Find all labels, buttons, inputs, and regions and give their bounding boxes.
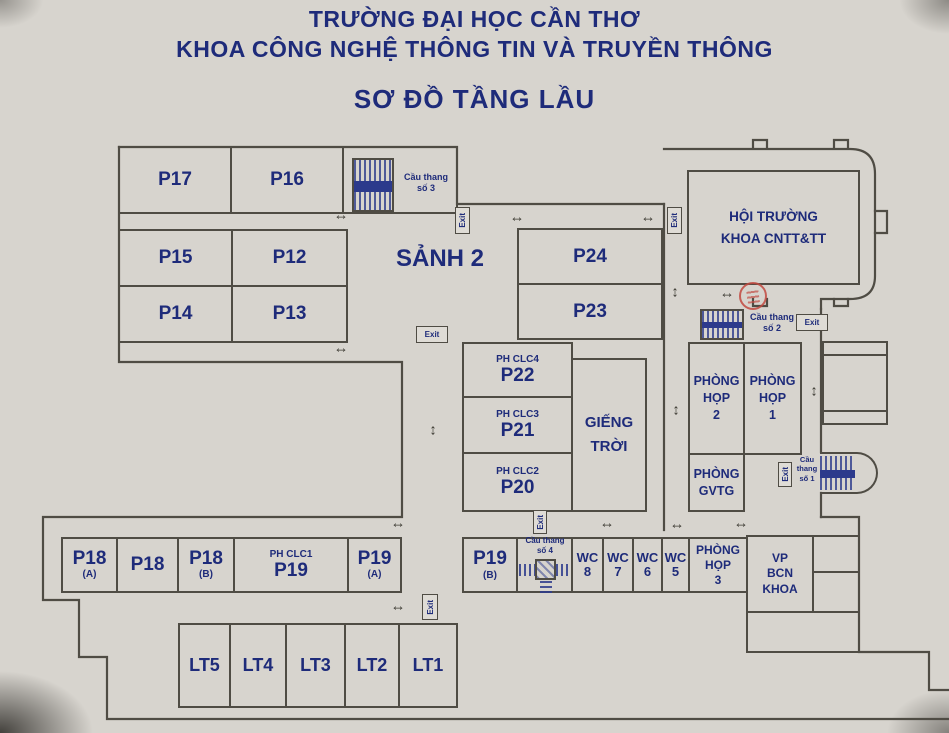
exit-sign: Exit <box>533 510 547 534</box>
room-wc5: WC 5 <box>663 539 688 591</box>
corridor-arrow-h: ↔ <box>391 599 406 614</box>
room-p18: P18 <box>118 539 179 591</box>
room-p23: P23 <box>519 285 661 338</box>
stair-4-hatch-bottom <box>540 580 552 593</box>
stair-1-icon <box>820 452 878 494</box>
room-lt5: LT5 <box>180 625 231 706</box>
block-wc: WC 8 WC 7 WC 6 WC 5 <box>571 537 690 593</box>
room-p16: P16 <box>232 148 344 212</box>
room-lt2: LT2 <box>346 625 400 706</box>
room-hop-3: PHÒNG HỌP 3 <box>688 537 748 593</box>
location-stamp <box>739 282 767 310</box>
block-bottom-left: P18 (A) P18 P18 (B) PH CLC1 P19 P19 (A) <box>61 537 402 593</box>
corridor-arrow-h: ↔ <box>670 517 685 532</box>
room-p21: PH CLC3 P21 <box>464 398 571 454</box>
room-p14: P14 <box>120 287 233 341</box>
corridor-arrow-v: ↕ <box>810 384 818 399</box>
corridor-arrow-h: ↔ <box>334 208 349 223</box>
exit-sign: Exit <box>796 314 828 331</box>
room-gvtg: PHÒNG GVTG <box>688 453 745 512</box>
stair-2-icon <box>700 309 744 340</box>
room-vp-bcn-khoa: VP BCN KHOA <box>746 535 814 613</box>
room-p13: P13 <box>233 287 346 341</box>
room-hop-2: PHÒNG HỌP 2 <box>690 344 745 453</box>
corridor-arrow-h: ↔ <box>734 516 749 531</box>
room-unlabeled-3 <box>746 611 860 653</box>
room-lt3: LT3 <box>287 625 346 706</box>
corridor-arrow-v: ↕ <box>672 403 680 418</box>
exit-sign: Exit <box>422 594 438 620</box>
wall-path <box>875 211 887 233</box>
block-left-row1: P15 P12 <box>120 231 346 287</box>
corridor-arrow-h: ↔ <box>334 341 349 356</box>
room-p12: P12 <box>233 231 346 287</box>
room-p22: PH CLC4 P22 <box>464 344 571 398</box>
room-p24: P24 <box>519 230 661 285</box>
room-p18b: P18 (B) <box>179 539 235 591</box>
corridor-arrow-h: ↔ <box>510 210 525 225</box>
stair-3-icon <box>352 158 394 212</box>
floor-plan: TRƯỜNG ĐẠI HỌC CẦN THƠ KHOA CÔNG NGHỆ TH… <box>0 0 949 733</box>
stair-3-label: Cầu thang số 3 <box>396 172 456 195</box>
room-unlabeled-2 <box>814 573 858 611</box>
stair-4-hatch-right <box>556 564 572 576</box>
block-left-row2: P14 P13 <box>120 287 346 341</box>
corridor-arrow-h: ↔ <box>720 286 735 301</box>
room-p17: P17 <box>120 148 232 212</box>
room-gieng-troi: GIẾNG TRỜI <box>571 358 647 512</box>
room-p19b: P19 (B) <box>462 537 518 593</box>
room-wc6: WC 6 <box>634 539 663 591</box>
hall-2-label: SẢNH 2 <box>395 245 485 273</box>
room-wc8: WC 8 <box>573 539 604 591</box>
room-p20: PH CLC2 P20 <box>464 454 571 510</box>
room-p15: P15 <box>120 231 233 287</box>
room-p19-clc1: PH CLC1 P19 <box>235 539 349 591</box>
room-hop-1: PHÒNG HỌP 1 <box>745 344 800 453</box>
stair-4-label: Cầu thang số 4 <box>519 536 571 556</box>
balcony <box>822 341 888 425</box>
room-p18a: P18 (A) <box>63 539 118 591</box>
corridor-arrow-v: ↕ <box>429 423 437 438</box>
block-left: P15 P12 P14 P13 <box>118 229 348 343</box>
room-lt1: LT1 <box>400 625 456 706</box>
room-hoi-truong: HỘI TRƯỜNG KHOA CNTT&TT <box>687 170 860 285</box>
stair-2-label: Cầu thang số 2 <box>745 312 799 335</box>
room-wc7: WC 7 <box>604 539 634 591</box>
stair-4-icon <box>535 559 556 580</box>
block-p24-p23: P24 P23 <box>517 228 663 340</box>
exit-sign: Exit <box>778 462 792 487</box>
wall-path <box>753 299 848 306</box>
corridor-arrow-h: ↔ <box>391 516 406 531</box>
stair-1-label: Cầu thang số 1 <box>793 455 821 483</box>
wall-path <box>753 140 848 147</box>
exit-sign: Exit <box>416 326 448 343</box>
corridor-arrow-h: ↔ <box>641 210 656 225</box>
room-unlabeled-1 <box>814 537 858 573</box>
exit-sign: Exit <box>667 207 682 234</box>
room-p19a: P19 (A) <box>349 539 400 591</box>
block-meeting: PHÒNG HỌP 2 PHÒNG HỌP 1 <box>688 342 802 455</box>
corridor-arrow-v: ↕ <box>671 285 679 300</box>
stair-4-hatch-left <box>519 564 535 576</box>
block-lt: LT5 LT4 LT3 LT2 LT1 <box>178 623 458 708</box>
room-lt4: LT4 <box>231 625 287 706</box>
corridor-arrow-h: ↔ <box>600 516 615 531</box>
stair-1-hatch <box>820 456 855 490</box>
block-vp-side <box>812 535 860 613</box>
block-clc: PH CLC4 P22 PH CLC3 P21 PH CLC2 P20 <box>462 342 573 512</box>
exit-sign: Exit <box>455 207 470 234</box>
